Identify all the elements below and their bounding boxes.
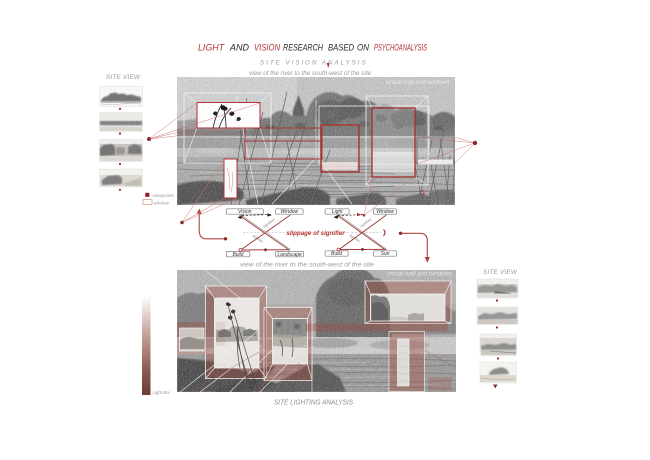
svg-text:AND: AND xyxy=(229,43,250,53)
svg-text:Light Bar: Light Bar xyxy=(153,390,171,395)
svg-text:viewpoints: viewpoints xyxy=(153,193,175,198)
svg-text:LIGHT: LIGHT xyxy=(198,43,225,53)
svg-text:Window: Window xyxy=(280,209,298,215)
svg-text:view of the river to the south: view of the river to the south-west of t… xyxy=(249,70,371,77)
svg-text:PSYCHOANALYSIS: PSYCHOANALYSIS xyxy=(374,43,427,53)
svg-text:Sun: Sun xyxy=(381,251,390,257)
svg-text:ON: ON xyxy=(357,43,370,53)
svg-text:Landscape: Landscape xyxy=(277,252,302,258)
svg-text:SITE VISION ANALYSIS: SITE VISION ANALYSIS xyxy=(260,60,368,67)
svg-text:Window: Window xyxy=(376,209,394,215)
svg-text:signified: signified xyxy=(262,217,276,228)
svg-text:Build: Build xyxy=(331,251,342,257)
svg-text:Build: Build xyxy=(232,252,243,258)
svg-text:SITE VIEW: SITE VIEW xyxy=(106,74,141,81)
svg-text:VISION: VISION xyxy=(254,43,281,53)
svg-text:Light: Light xyxy=(332,209,343,215)
svg-text:virtual wall and windows: virtual wall and windows xyxy=(386,80,450,86)
svg-text:Vision: Vision xyxy=(238,209,252,215)
svg-text:SITE LIGHTING ANALYSIS: SITE LIGHTING ANALYSIS xyxy=(274,398,353,407)
svg-text:SITE VIEW: SITE VIEW xyxy=(483,269,518,276)
svg-text:window: window xyxy=(154,200,170,205)
svg-text:RESEARCH: RESEARCH xyxy=(283,43,324,53)
svg-text:virtual wall and windows: virtual wall and windows xyxy=(388,272,452,278)
svg-text:view of the river to the south: view of the river to the south-west of t… xyxy=(240,262,374,269)
svg-text:slippage of signifier: slippage of signifier xyxy=(286,230,345,237)
svg-text:BASED: BASED xyxy=(328,43,355,53)
